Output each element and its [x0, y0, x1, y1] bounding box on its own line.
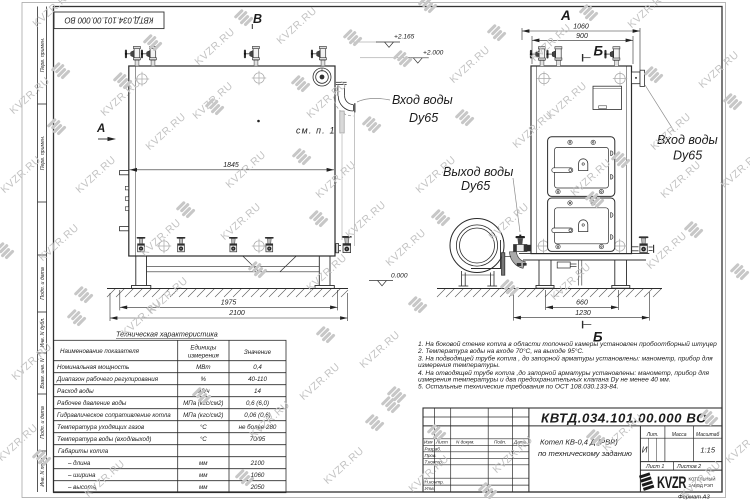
svg-text:Перв. примен.: Перв. примен. [40, 38, 46, 72]
svg-text:14: 14 [254, 388, 261, 395]
svg-text:А: А [96, 123, 105, 135]
svg-text:Изм: Изм [424, 440, 433, 445]
svg-text:МВт: МВт [196, 364, 210, 371]
svg-text:+2.000: +2.000 [423, 49, 444, 56]
svg-text:1:15: 1:15 [700, 446, 715, 455]
svg-text:Номинальная мощность: Номинальная мощность [57, 364, 129, 371]
svg-text:Наименование показателя: Наименование показателя [60, 348, 140, 355]
svg-text:Диапазон рабочего регулировани: Диапазон рабочего регулирования [56, 376, 159, 383]
svg-text:А: А [560, 8, 571, 23]
svg-text:2050: 2050 [250, 484, 265, 491]
svg-text:Перв. примен.: Перв. примен. [40, 136, 46, 170]
svg-text:Значение: Значение [244, 349, 272, 356]
svg-text:Единицы: Единицы [190, 345, 216, 352]
svg-text:1975: 1975 [221, 300, 237, 307]
svg-text:– ширина: – ширина [67, 472, 96, 479]
svg-text:Масса: Масса [672, 432, 687, 438]
svg-text:N докум.: N докум. [456, 440, 475, 445]
svg-text:Dy65: Dy65 [461, 179, 490, 193]
svg-text:1230: 1230 [575, 310, 591, 317]
svg-text:%: % [201, 376, 207, 383]
svg-text:5. Остальные технические треб: 5. Остальные технические требования по О… [418, 383, 619, 391]
svg-text:Температура воды (вход/выход): Температура воды (вход/выход) [57, 436, 151, 443]
svg-text:КВТД.034.101.00.000 ВО: КВТД.034.101.00.000 ВО [65, 16, 154, 25]
svg-text:мм: мм [199, 484, 208, 491]
svg-text:Dy65: Dy65 [409, 111, 438, 125]
svg-text:Лит.: Лит. [646, 432, 659, 438]
svg-text:мм: мм [199, 472, 208, 479]
svg-text:2100: 2100 [228, 310, 245, 317]
svg-text:Б: Б [594, 44, 604, 59]
svg-text:660: 660 [576, 299, 588, 306]
svg-text:40-110: 40-110 [248, 376, 267, 383]
svg-text:Dy65: Dy65 [673, 149, 702, 163]
svg-text:Лист: Лист [435, 440, 448, 445]
svg-text:Лист 1: Лист 1 [645, 464, 664, 470]
svg-text:2100: 2100 [250, 460, 265, 467]
svg-text:Расход воды: Расход воды [57, 388, 94, 395]
svg-text:Гидравлическое сопративление к: Гидравлическое сопративление котла [57, 412, 171, 419]
svg-text:Температура уходящих газов: Температура уходящих газов [57, 424, 145, 431]
svg-text:Разраб.: Разраб. [425, 446, 442, 451]
svg-text:Габариты котла: Габариты котла [58, 448, 109, 455]
svg-text:Подп. и дата: Подп. и дата [40, 406, 46, 439]
svg-text:1845: 1845 [223, 162, 239, 169]
svg-text:– длина: – длина [67, 460, 91, 467]
svg-text:Пров.: Пров. [425, 453, 437, 458]
svg-text:1. На боковой стенке котла в: 1. На боковой стенке котла в области топ… [418, 340, 717, 348]
svg-text:В: В [253, 12, 262, 26]
svg-text:мм: мм [199, 460, 208, 467]
svg-text:МПа (кгс/см2): МПа (кгс/см2) [183, 412, 223, 419]
svg-text:2. Температура воды на входе: 2. Температура воды на входе 70°С, на вы… [417, 347, 584, 355]
svg-text:измерения температуры.: измерения температуры. [418, 362, 500, 369]
svg-text:измерения температуры и два пр: измерения температуры и два предохраните… [418, 375, 671, 383]
svg-text:Вход воды: Вход воды [392, 93, 453, 107]
svg-text:0,4: 0,4 [253, 364, 262, 371]
svg-text:Утв.: Утв. [425, 486, 435, 491]
svg-text:измерения: измерения [188, 353, 220, 360]
svg-text:Взам. инв. N: Взам. инв. N [40, 358, 46, 388]
svg-text:Подп. и дата: Подп. и дата [40, 267, 46, 300]
svg-text:°С: °С [200, 424, 207, 431]
svg-text:Листов 2: Листов 2 [676, 464, 701, 470]
svg-text:Выход воды: Выход воды [443, 165, 513, 179]
svg-text:Подп.: Подп. [494, 440, 506, 445]
svg-text:Масштаб: Масштаб [696, 432, 720, 438]
svg-text:0.000: 0.000 [391, 273, 408, 280]
svg-text:см. п. 1: см. п. 1 [296, 126, 336, 136]
svg-text:1060: 1060 [573, 24, 589, 31]
svg-text:+2.165: +2.165 [394, 34, 415, 41]
svg-text:по техническому заданию: по техническому заданию [538, 449, 632, 458]
svg-text:900: 900 [576, 33, 588, 40]
svg-text:Рабочее давление воды: Рабочее давление воды [57, 400, 127, 407]
svg-text:0,6 (6,0): 0,6 (6,0) [246, 400, 269, 407]
svg-text:И: И [642, 446, 648, 455]
svg-text:°С: °С [200, 436, 207, 443]
